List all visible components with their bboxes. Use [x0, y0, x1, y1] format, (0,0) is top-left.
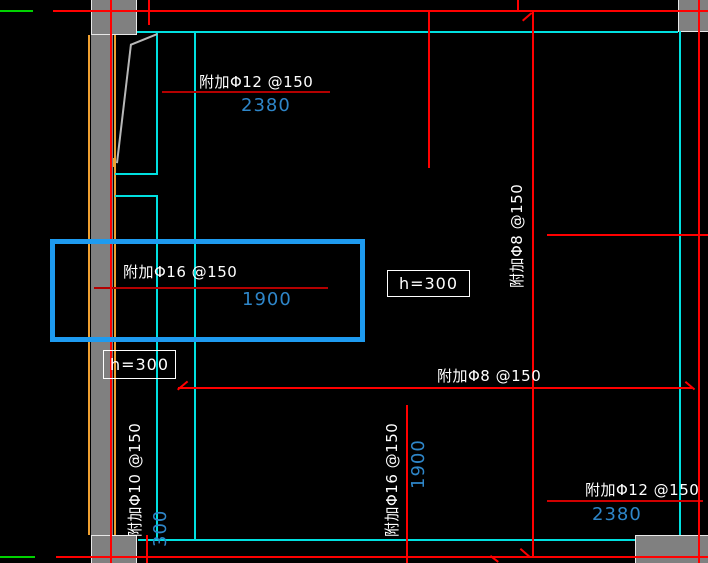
rebar-dim-selected[interactable]: 1900 [242, 289, 292, 310]
underline-bottom-right-rebar [547, 500, 703, 502]
slab-edge-bottom [138, 539, 635, 541]
arrowhead-left-long-line [177, 381, 188, 391]
slab-thickness-center-label: h=300 [399, 274, 458, 293]
axis-green-bottom [0, 556, 35, 558]
grid-line-2-top-stub [148, 0, 150, 25]
rebar-label-bottom-horizontal[interactable]: 附加Φ8 @150 [437, 365, 541, 386]
wall-edge-orange-tick [113, 158, 115, 167]
rebar-line-horizontal-long [178, 387, 692, 389]
leader-arrow-top [517, 0, 519, 10]
rebar-dim-left-vertical[interactable]: 300 [150, 510, 171, 547]
slab-thickness-box-center[interactable]: h=300 [387, 270, 470, 297]
slab-opening-jog-top [115, 173, 158, 175]
break-line-lower [116, 44, 131, 163]
slab-thickness-box-left[interactable]: h=300 [103, 350, 176, 379]
axis-green-top [0, 10, 33, 12]
rebar-line-upper-center [428, 11, 430, 168]
slab-edge-right [679, 31, 681, 535]
selection-highlight-box [50, 239, 365, 342]
slab-edge-inner-upper [156, 32, 158, 173]
column-top-left [91, 0, 137, 35]
cad-drawing-canvas: h=300 h=300 附加Φ12 @150 2380 附加Φ16 @150 1… [0, 0, 708, 563]
slab-opening-jog-bottom [115, 195, 158, 197]
rebar-label-selected[interactable]: 附加Φ16 @150 [123, 261, 237, 282]
rebar-label-bottom-right[interactable]: 附加Φ12 @150 [585, 479, 699, 500]
column-top-right [678, 0, 708, 32]
rebar-label-right-vertical[interactable]: 附加Φ8 @150 [506, 184, 527, 288]
slab-edge-top [137, 31, 678, 33]
grid-line-bottom [56, 556, 708, 558]
rebar-dim-bottom-right[interactable]: 2380 [592, 504, 642, 525]
rebar-label-center-vertical[interactable]: 附加Φ16 @150 [381, 423, 402, 537]
rebar-line-right-upper [547, 234, 708, 236]
leader-arrowhead-top [522, 12, 532, 21]
grid-line-2-bottom-stub [146, 535, 148, 563]
rebar-dim-center-vertical[interactable]: 1900 [408, 439, 429, 489]
column-bottom-left [91, 535, 137, 563]
slab-thickness-left-label: h=300 [110, 355, 169, 374]
rebar-label-top[interactable]: 附加Φ12 @150 [199, 71, 313, 92]
grid-line-top [53, 10, 708, 12]
rebar-line-center-vertical [532, 11, 534, 557]
rebar-dim-top[interactable]: 2380 [241, 95, 291, 116]
rebar-label-left-vertical[interactable]: 附加Φ10 @150 [124, 423, 145, 537]
